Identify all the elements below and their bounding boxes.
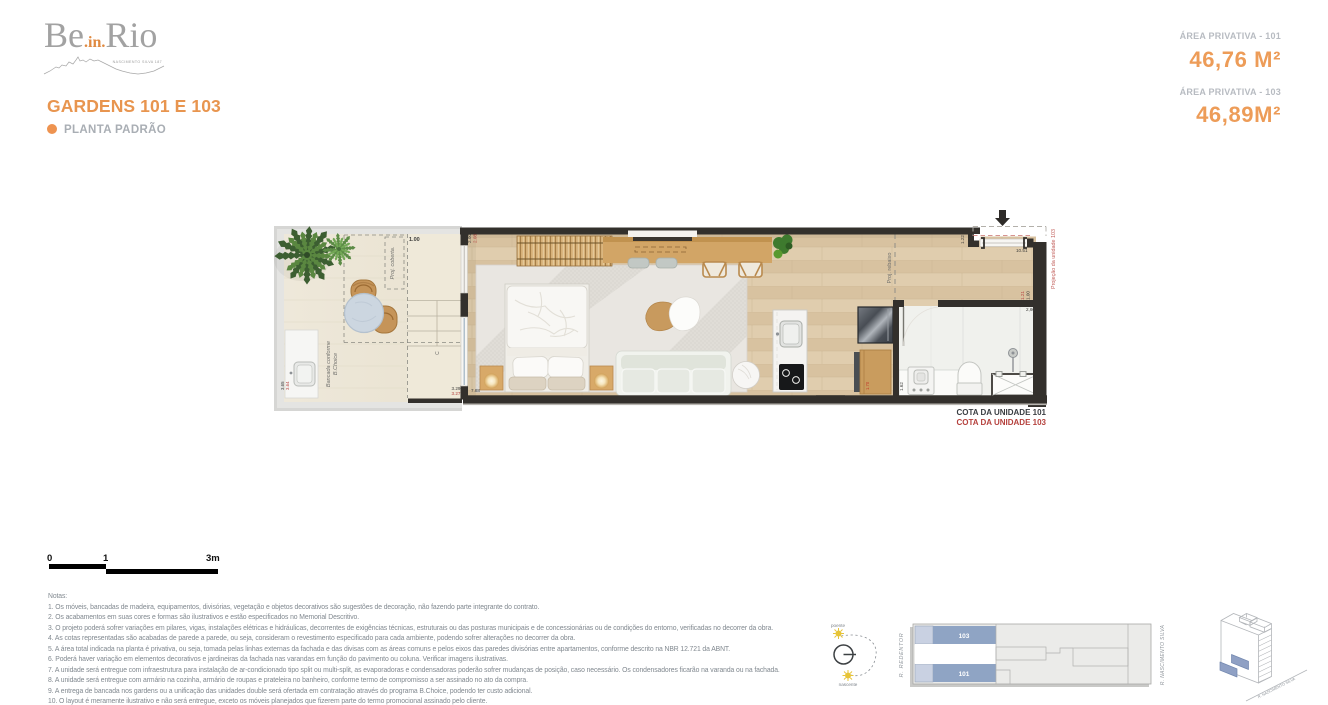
svg-text:Bancada conforme: Bancada conforme xyxy=(326,341,332,387)
svg-text:Proj. coberta.: Proj. coberta. xyxy=(390,247,396,280)
svg-text:3.27: 3.27 xyxy=(452,391,461,396)
svg-text:R. NASCIMENTO SILVA: R. NASCIMENTO SILVA xyxy=(1160,624,1166,685)
svg-text:Proj. rebaixo: Proj. rebaixo xyxy=(887,253,893,284)
svg-text:R. REDENTOR: R. REDENTOR xyxy=(899,633,905,678)
svg-text:2,60: 2,60 xyxy=(1026,307,1035,312)
svg-text:B.Choice: B.Choice xyxy=(333,353,339,375)
svg-text:1.62: 1.62 xyxy=(899,382,904,391)
svg-text:1.00: 1.00 xyxy=(409,237,420,243)
svg-text:10.51: 10.51 xyxy=(1016,248,1028,253)
svg-text:Projeção da unidade 103: Projeção da unidade 103 xyxy=(1051,229,1057,289)
svg-text:1.70: 1.70 xyxy=(865,381,870,390)
svg-text:7.88: 7.88 xyxy=(471,388,480,393)
svg-text:3.64: 3.64 xyxy=(285,381,290,390)
svg-text:2.00: 2.00 xyxy=(467,234,472,243)
svg-text:1.00: 1.00 xyxy=(1026,291,1031,300)
svg-text:nascente: nascente xyxy=(839,682,858,687)
svg-text:1.21: 1.21 xyxy=(1020,291,1025,300)
svg-text:101: 101 xyxy=(959,671,970,678)
svg-text:2.08: 2.08 xyxy=(473,234,478,243)
svg-text:103: 103 xyxy=(959,633,970,640)
svg-text:poente: poente xyxy=(831,623,845,628)
svg-text:1.22: 1.22 xyxy=(960,235,965,244)
svg-text:C: C xyxy=(435,351,441,355)
